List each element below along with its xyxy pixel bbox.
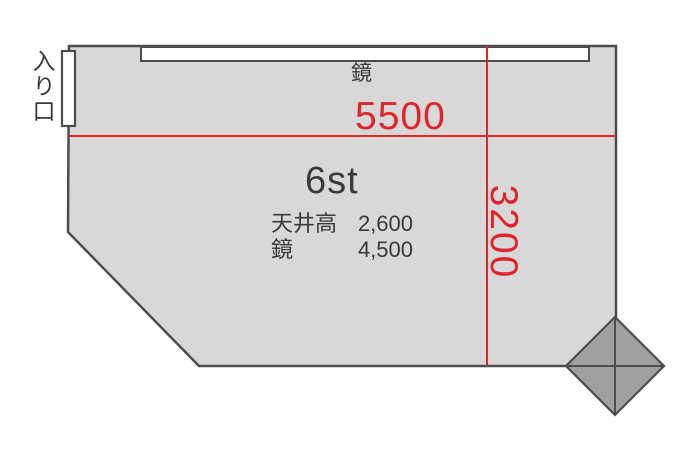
spec-row-ceiling: 天井高 2,600 xyxy=(271,211,413,237)
mirror-label: 鏡 xyxy=(351,63,372,84)
spec-value: 2,600 xyxy=(358,211,413,237)
entrance-label: 入り口 xyxy=(30,49,53,124)
room-specs: 天井高 2,600 鏡 4,500 xyxy=(271,211,413,263)
spec-label: 天井高 xyxy=(271,211,337,237)
entrance-door xyxy=(62,51,75,126)
width-dimension-value: 5500 xyxy=(355,97,446,136)
height-dimension-value: 3200 xyxy=(481,172,525,292)
mirror-strip xyxy=(141,47,589,61)
floor-plan: 入り口 鏡 5500 6st 天井高 2,600 鏡 4,500 3200 xyxy=(0,0,700,465)
room-outline xyxy=(68,46,616,366)
spec-label: 鏡 xyxy=(271,237,293,263)
spec-value: 4,500 xyxy=(358,237,413,263)
spec-row-mirror: 鏡 4,500 xyxy=(271,237,413,263)
room-name: 6st xyxy=(305,162,359,200)
